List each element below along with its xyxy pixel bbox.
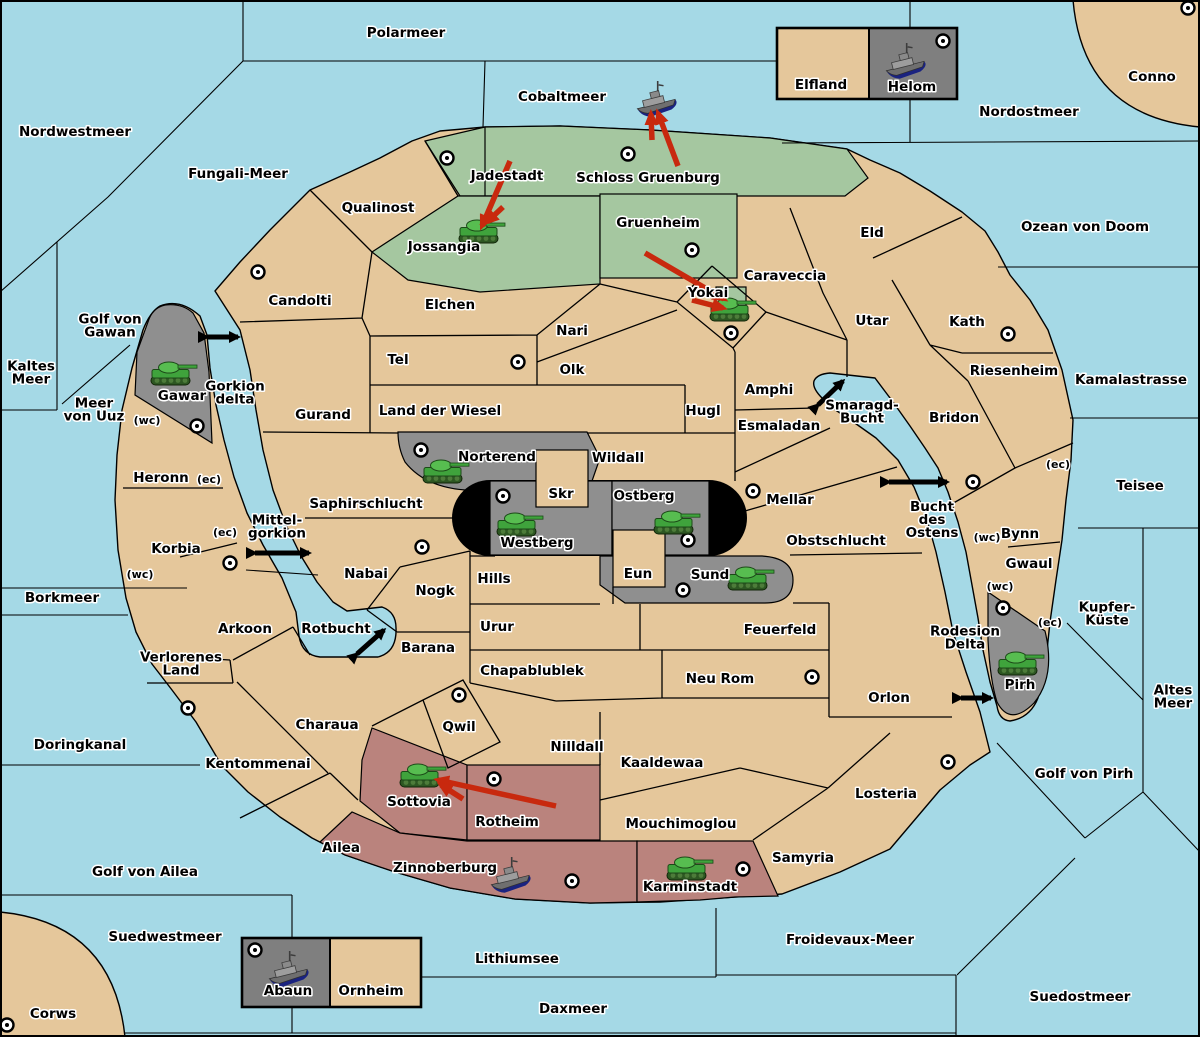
region-label-qualinost: Qualinost <box>342 200 415 216</box>
coast-label-ec: (ec) <box>213 526 237 539</box>
region-label-eun: Eun <box>624 566 652 582</box>
region-label-rotheim: Rotheim <box>475 814 539 830</box>
sea-label-nordwestmeer: Nordwestmeer <box>19 124 131 140</box>
region-label-gwaul: Gwaul <box>1006 556 1053 572</box>
supply-center-gawar <box>191 420 204 433</box>
move-arrow-3 <box>651 114 652 140</box>
region-label-karminstadt: Karminstadt <box>643 879 738 895</box>
sea-label-golf-von-gawan: Golf vonGawan <box>78 312 141 341</box>
region-label-tel: Tel <box>387 352 408 368</box>
region-label-skr: Skr <box>548 486 574 502</box>
region-label-sund: Sund <box>691 567 730 583</box>
region-label-heronn: Heronn <box>133 470 189 486</box>
region-label-wildall: Wildall <box>592 450 644 466</box>
supply-center-rotheim <box>488 773 501 786</box>
supply-center-losteria <box>942 756 955 769</box>
coast-label-ec: (ec) <box>1046 458 1070 471</box>
region-label-norterend: Norterend <box>458 449 536 465</box>
region-label-abaun: Abaun <box>264 983 312 999</box>
region-label-zinnoberburg: Zinnoberburg <box>393 860 497 876</box>
region-label-schloss-gruenburg: Schloss Gruenburg <box>576 170 720 186</box>
coast-label-ec: (ec) <box>197 473 221 486</box>
sea-label-golf-von-ailea: Golf von Ailea <box>92 864 198 880</box>
region-label-ornheim: Ornheim <box>338 983 403 999</box>
region-label-hills: Hills <box>477 571 510 587</box>
region-label-urur: Urur <box>480 619 514 635</box>
region-label-caraveccia: Caraveccia <box>744 268 826 284</box>
region-label-kentommenai: Kentommenai <box>205 756 310 772</box>
region-label-jossangia: Jossangia <box>407 239 481 255</box>
region-label-gawar: Gawar <box>158 388 207 404</box>
region-label-olk: Olk <box>559 362 585 378</box>
region-label-charaua: Charaua <box>295 717 358 733</box>
supply-center-westberg <box>497 490 510 503</box>
region-label-candolti: Candolti <box>268 293 331 309</box>
sea-label-suedwestmeer: Suedwestmeer <box>108 929 222 945</box>
region-label-yokai: Yokai <box>687 285 729 301</box>
supply-center-pirh <box>997 602 1010 615</box>
region-label-korbia: Korbia <box>151 541 201 557</box>
region-label-helom: Helom <box>888 79 936 95</box>
sea-label-golf-von-pirh: Golf von Pirh <box>1035 766 1134 782</box>
coast-label-wc: (wc) <box>987 580 1014 593</box>
supply-center-sund <box>677 584 690 597</box>
region-label-bridon: Bridon <box>929 410 979 426</box>
game-map: PolarmeerNordwestmeerFungali-MeerCobaltm… <box>0 0 1200 1037</box>
region-label-losteria: Losteria <box>855 786 917 802</box>
sea-label-lithiumsee: Lithiumsee <box>475 951 559 967</box>
supply-center-schloss-gruenburg <box>622 148 635 161</box>
region-label-qwil: Qwil <box>442 719 475 735</box>
sea-label-rotbucht: Rotbucht <box>301 621 371 637</box>
region-label-saphirschlucht: Saphirschlucht <box>309 496 423 512</box>
region-label-jadestadt: Jadestadt <box>470 168 544 184</box>
region-label-ostberg: Ostberg <box>613 488 674 504</box>
supply-center-bynn <box>967 476 980 489</box>
sea-label-mittel-gorkion: Mittel-gorkion <box>248 513 306 542</box>
region-label-hugl: Hugl <box>685 403 720 419</box>
coast-label-wc: (wc) <box>974 531 1001 544</box>
region-label-ailea: Ailea <box>322 840 360 856</box>
region-label-sottovia: Sottovia <box>387 794 451 810</box>
region-label-elchen: Elchen <box>425 297 475 313</box>
supply-center-candolti <box>252 266 265 279</box>
region-label-feuerfeld: Feuerfeld <box>744 622 817 638</box>
region-label-westberg: Westberg <box>500 535 573 551</box>
supply-center-conno <box>1182 2 1195 15</box>
supply-center-korbia <box>224 557 237 570</box>
sea-label-cobaltmeer: Cobaltmeer <box>518 89 606 105</box>
supply-center-jadestadt <box>441 152 454 165</box>
sea-label-nordostmeer: Nordostmeer <box>979 104 1079 120</box>
region-label-mellar: Mellar <box>766 492 814 508</box>
region-label-nabai: Nabai <box>344 566 388 582</box>
region-label-nilldall: Nilldall <box>550 739 603 755</box>
region-label-mouchimoglou: Mouchimoglou <box>625 816 736 832</box>
sea-label-ozean-von-doom: Ozean von Doom <box>1021 219 1149 235</box>
coast-label-wc: (wc) <box>134 414 161 427</box>
region-label-nogk: Nogk <box>415 583 455 599</box>
sea-label-doringkanal: Doringkanal <box>34 737 126 753</box>
region-label-gurand: Gurand <box>295 407 351 423</box>
supply-center-kath <box>1002 328 1015 341</box>
sea-label-daxmeer: Daxmeer <box>539 1001 607 1017</box>
supply-center-qwil <box>453 689 466 702</box>
region-label-chapablublek: Chapablublek <box>480 663 585 679</box>
region-label-utar: Utar <box>855 313 889 329</box>
supply-center-gruenheim <box>686 244 699 257</box>
region-label-kaaldewaa: Kaaldewaa <box>621 755 704 771</box>
region-label-orlon: Orlon <box>868 690 910 706</box>
region-label-amphi: Amphi <box>745 382 793 398</box>
supply-center-abaun <box>249 944 262 957</box>
sea-label-froidevaux-meer: Froidevaux-Meer <box>786 932 914 948</box>
supply-center-zinnoberburg <box>566 875 579 888</box>
sea-label-kamalastrasse: Kamalastrasse <box>1075 372 1187 388</box>
supply-center-nabai <box>416 541 429 554</box>
region-label-land-der-wiesel: Land der Wiesel <box>379 403 501 419</box>
region-label-corws: Corws <box>30 1006 76 1022</box>
supply-center-yokai <box>725 327 738 340</box>
region-label-arkoon: Arkoon <box>218 621 272 637</box>
supply-center-karminstadt <box>737 863 750 876</box>
sea-label-polarmeer: Polarmeer <box>367 25 446 41</box>
coast-label-ec: (ec) <box>1038 616 1062 629</box>
supply-center-norterend <box>415 444 428 457</box>
region-label-kath: Kath <box>949 314 985 330</box>
region-label-esmaladan: Esmaladan <box>738 418 821 434</box>
sea-label-teisee: Teisee <box>1116 478 1164 494</box>
supply-center-ostberg <box>682 534 695 547</box>
region-label-bynn: Bynn <box>1001 526 1039 542</box>
region-label-nari: Nari <box>556 323 588 339</box>
sea-label-suedostmeer: Suedostmeer <box>1030 989 1131 1005</box>
sea-label-fungali-meer: Fungali-Meer <box>188 166 288 182</box>
supply-center-mellar <box>747 485 760 498</box>
supply-center-tel <box>512 356 525 369</box>
region-label-gruenheim: Gruenheim <box>616 215 700 231</box>
sea-label-kaltes-meer: KaltesMeer <box>7 359 55 388</box>
coast-label-wc: (wc) <box>127 568 154 581</box>
sea-label-kupfer-k-ste: Kupfer-Küste <box>1079 600 1136 629</box>
region-label-riesenheim: Riesenheim <box>970 363 1058 379</box>
region-label-eld: Eld <box>860 225 884 241</box>
sea-label-altes-meer: AltesMeer <box>1154 683 1193 712</box>
region-label-pirh: Pirh <box>1005 677 1036 693</box>
sea-label-borkmeer: Borkmeer <box>25 590 100 606</box>
region-label-samyria: Samyria <box>772 850 834 866</box>
supply-center-corws <box>1 1019 14 1032</box>
region-label-barana: Barana <box>401 640 455 656</box>
region-label-obstschlucht: Obstschlucht <box>786 533 886 549</box>
supply-center-helom <box>937 35 950 48</box>
region-label-neu-rom: Neu Rom <box>686 671 755 687</box>
supply-center-kentommenai <box>182 702 195 715</box>
region-label-elfland: Elfland <box>795 77 847 93</box>
supply-center-neu-rom <box>806 671 819 684</box>
region-label-conno: Conno <box>1128 69 1176 85</box>
